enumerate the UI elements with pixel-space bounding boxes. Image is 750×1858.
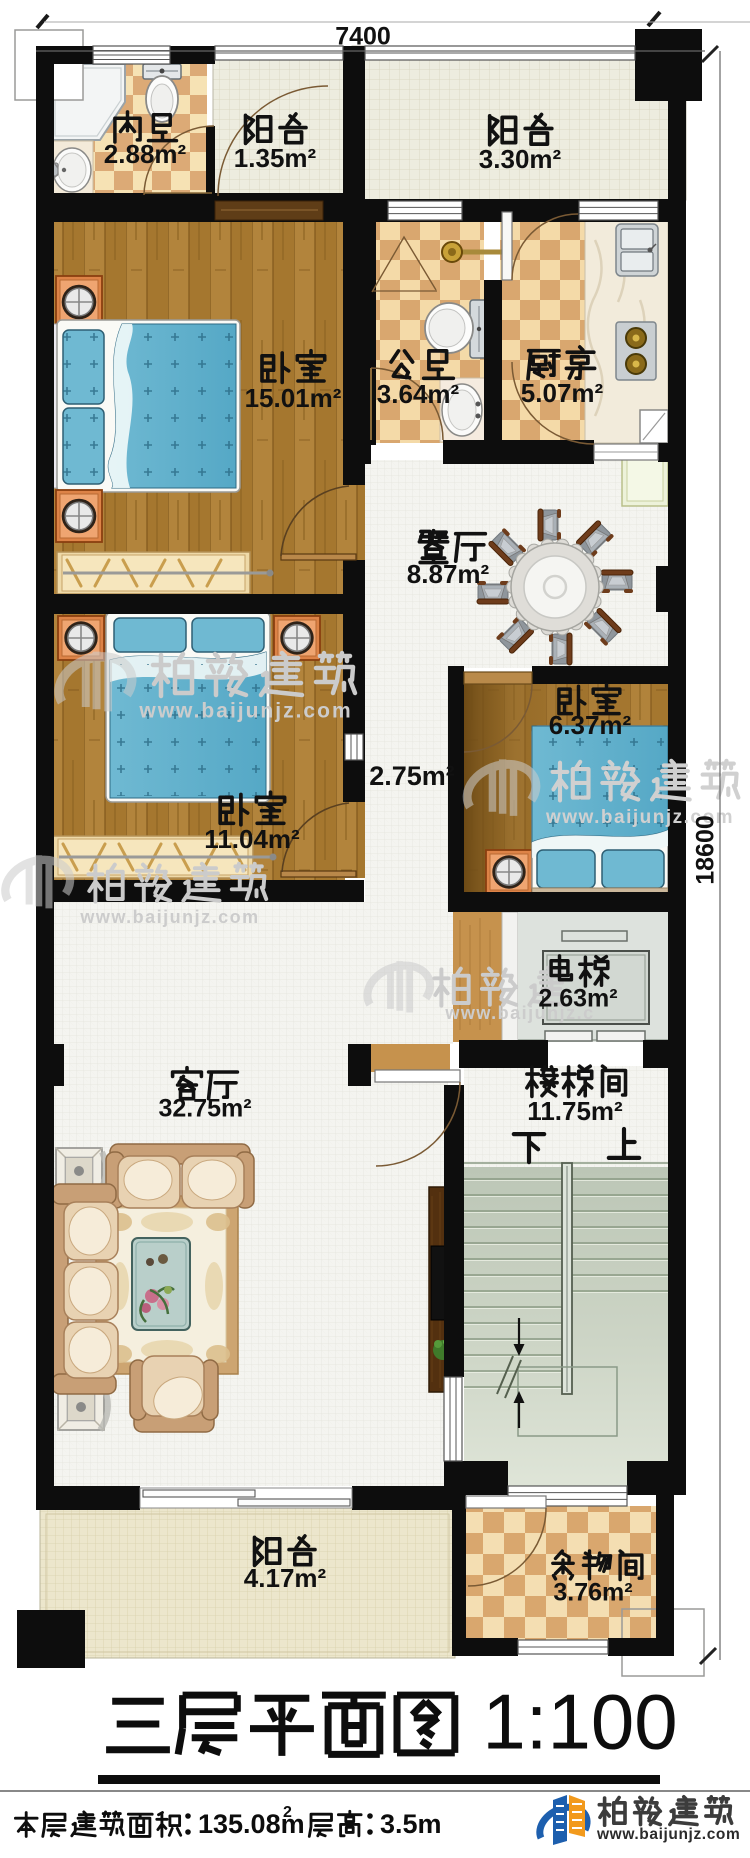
svg-text:4.17m²: 4.17m²: [244, 1563, 327, 1593]
svg-text:2.75m²: 2.75m²: [369, 761, 455, 791]
svg-text:www.baijunjz.com: www.baijunjz.com: [138, 700, 352, 723]
svg-text:3.30m²: 3.30m²: [479, 144, 562, 174]
svg-text:32.75m²: 32.75m²: [158, 1095, 251, 1123]
svg-text:2.63m²: 2.63m²: [538, 985, 617, 1013]
svg-text:3.5m: 3.5m: [380, 1809, 442, 1839]
svg-text:3.64m²: 3.64m²: [377, 379, 460, 409]
svg-text:6.37m²: 6.37m²: [549, 710, 632, 740]
svg-text:2: 2: [283, 1804, 292, 1821]
svg-text:18600: 18600: [692, 815, 720, 885]
svg-text:15.01m²: 15.01m²: [245, 383, 342, 413]
svg-text:www.baijunjz.com: www.baijunjz.com: [79, 907, 259, 927]
svg-text:www.baijunjz.com: www.baijunjz.com: [596, 1826, 740, 1843]
svg-text:5.07m²: 5.07m²: [521, 378, 604, 408]
svg-text:3.76m²: 3.76m²: [553, 1579, 632, 1607]
svg-text:2.88m²: 2.88m²: [104, 139, 187, 169]
svg-text:8.87m²: 8.87m²: [407, 559, 490, 589]
svg-text:7400: 7400: [335, 23, 391, 51]
svg-text:11.04m²: 11.04m²: [204, 824, 300, 854]
svg-text:1:100: 1:100: [482, 1678, 677, 1766]
svg-text:11.75m²: 11.75m²: [527, 1096, 623, 1126]
svg-text:1.35m²: 1.35m²: [234, 143, 317, 173]
